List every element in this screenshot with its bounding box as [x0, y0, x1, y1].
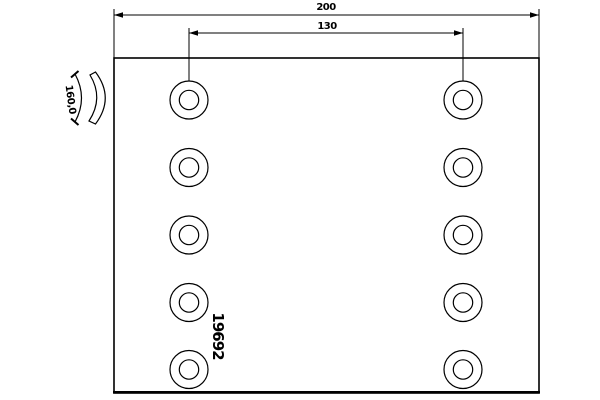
dim-hole-spacing-label: 130 [297, 21, 357, 32]
drawing-linework [0, 0, 600, 400]
mounting-hole [170, 216, 208, 254]
mounting-hole [444, 351, 482, 389]
arrowhead-left [189, 30, 198, 35]
mounting-hole [170, 351, 208, 389]
mounting-hole [444, 149, 482, 187]
dim-total-length-label: 200 [296, 2, 356, 13]
mounting-hole [444, 284, 482, 322]
dimension-130 [189, 28, 463, 81]
mounting-hole [444, 81, 482, 119]
mounting-hole [444, 216, 482, 254]
arrowhead-left [114, 12, 123, 17]
brake-lining-technical-drawing: 200 130 160,0 19692 [0, 0, 600, 400]
lining-outline [114, 58, 539, 393]
part-number-label: 19692 [210, 306, 226, 366]
lining-profile-crescent [89, 72, 105, 124]
mounting-hole [170, 149, 208, 187]
arrowhead-right [530, 12, 539, 17]
mounting-hole [170, 81, 208, 119]
mounting-hole [170, 284, 208, 322]
arrowhead-right [454, 30, 463, 35]
